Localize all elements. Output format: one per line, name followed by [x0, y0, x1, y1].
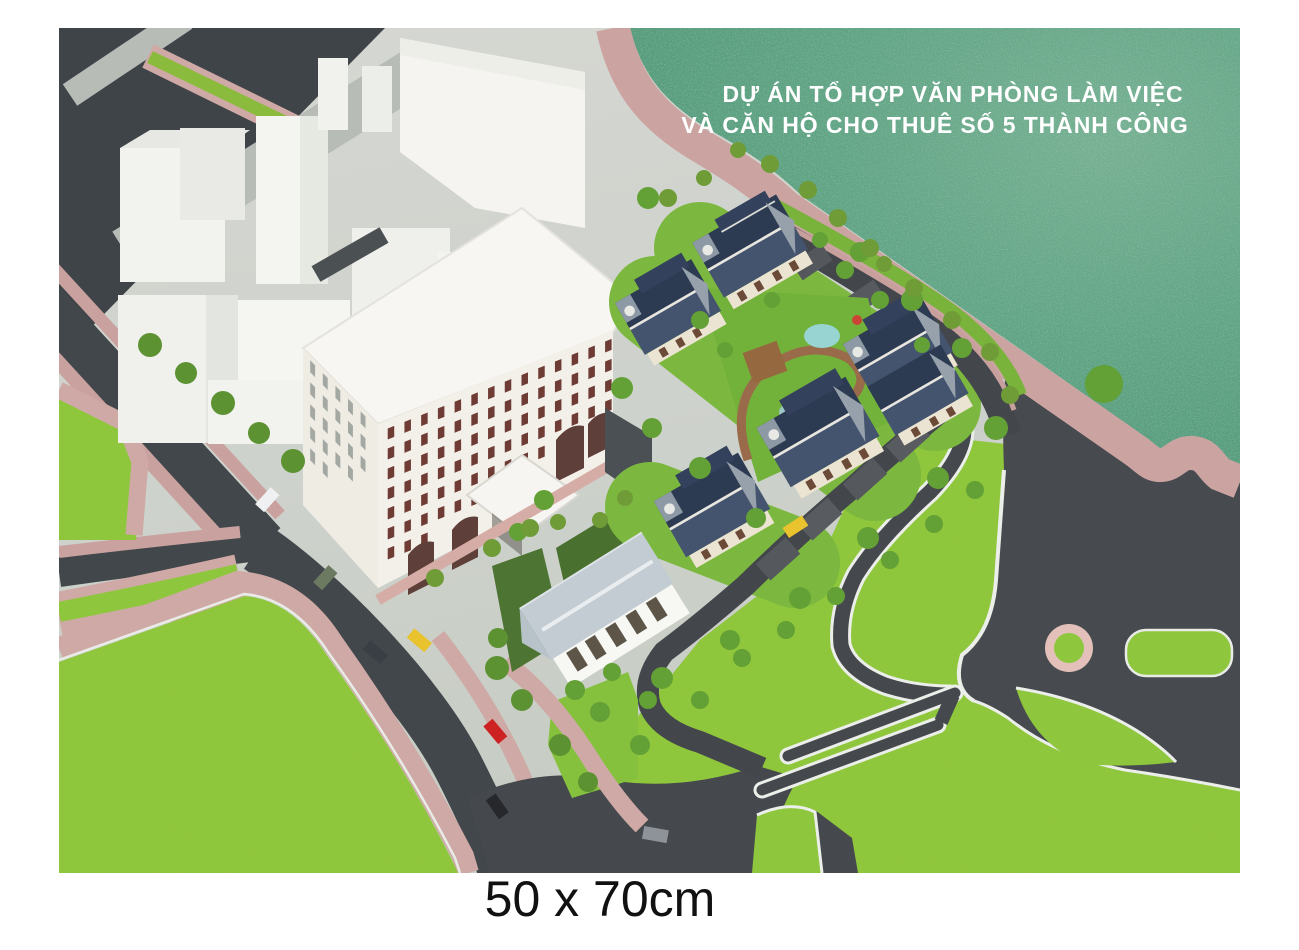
svg-text:DỰ ÁN TỔ HỢP VĂN PHÒNG LÀM VIỆ: DỰ ÁN TỔ HỢP VĂN PHÒNG LÀM VIỆC — [722, 80, 1183, 107]
svg-text:VÀ CĂN HỘ CHO THUÊ SỐ 5 THÀNH: VÀ CĂN HỘ CHO THUÊ SỐ 5 THÀNH CÔNG — [681, 111, 1188, 138]
svg-text:50 x 70cm: 50 x 70cm — [485, 871, 716, 927]
